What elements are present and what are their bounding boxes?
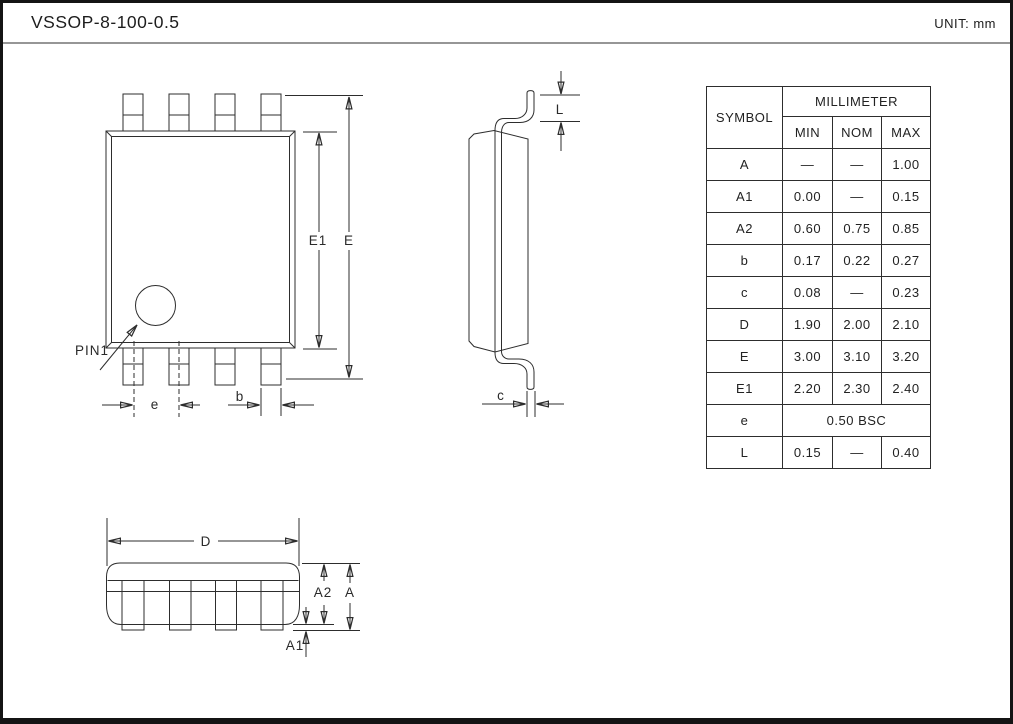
corner-miter bbox=[290, 131, 296, 137]
table-row: L 0.15 — 0.40 bbox=[707, 437, 931, 469]
pin bbox=[261, 94, 281, 131]
top-pins bbox=[123, 94, 281, 131]
lead bbox=[122, 581, 144, 631]
dimension-b: b bbox=[228, 388, 314, 416]
symbol-cell: c bbox=[707, 277, 783, 309]
table-row: A2 0.60 0.75 0.85 bbox=[707, 213, 931, 245]
col-header-nom: NOM bbox=[833, 117, 882, 149]
pin bbox=[215, 94, 235, 131]
lead bbox=[261, 581, 283, 631]
lead bbox=[170, 581, 192, 631]
min-cell: 0.08 bbox=[783, 277, 833, 309]
table-row: E1 2.20 2.30 2.40 bbox=[707, 373, 931, 405]
max-cell: 0.85 bbox=[882, 213, 931, 245]
top-view: PIN1 E1 E e bbox=[75, 94, 363, 417]
max-cell: 0.27 bbox=[882, 245, 931, 277]
pin bbox=[169, 94, 189, 131]
dimension-D: D bbox=[107, 518, 299, 566]
lead-top bbox=[502, 93, 535, 133]
nom-cell: — bbox=[833, 277, 882, 309]
symbol-cell: A bbox=[707, 149, 783, 181]
bottom-pins bbox=[123, 348, 281, 385]
dim-label-E: E bbox=[344, 233, 354, 248]
nom-cell: 2.30 bbox=[833, 373, 882, 405]
nom-cell: — bbox=[833, 149, 882, 181]
min-cell: 2.20 bbox=[783, 373, 833, 405]
lead-bottom bbox=[495, 353, 527, 388]
symbol-cell: E1 bbox=[707, 373, 783, 405]
max-cell: 2.40 bbox=[882, 373, 931, 405]
side-view: L c bbox=[469, 71, 580, 417]
col-header-millimeter: MILLIMETER bbox=[783, 87, 931, 117]
min-cell: 1.90 bbox=[783, 309, 833, 341]
dim-label-E1: E1 bbox=[309, 233, 328, 248]
max-cell: 1.00 bbox=[882, 149, 931, 181]
nom-cell: 0.22 bbox=[833, 245, 882, 277]
span-cell: 0.50 BSC bbox=[783, 405, 931, 437]
min-cell: 0.60 bbox=[783, 213, 833, 245]
table-row: E 3.00 3.10 3.20 bbox=[707, 341, 931, 373]
symbol-cell: A2 bbox=[707, 213, 783, 245]
dim-label-e: e bbox=[151, 397, 160, 412]
dimension-c: c bbox=[482, 388, 564, 417]
min-cell: — bbox=[783, 149, 833, 181]
front-view: D A2 A A1 bbox=[107, 518, 361, 657]
lead-tip-cap bbox=[527, 387, 534, 389]
symbol-cell: e bbox=[707, 405, 783, 437]
dimension-e: e bbox=[102, 341, 200, 417]
dimension-L: L bbox=[540, 71, 580, 151]
nom-cell: 0.75 bbox=[833, 213, 882, 245]
table-row: e 0.50 BSC bbox=[707, 405, 931, 437]
dim-label-D: D bbox=[201, 534, 212, 549]
body-top-surface bbox=[112, 137, 290, 343]
table-row: A1 0.00 — 0.15 bbox=[707, 181, 931, 213]
max-cell: 0.15 bbox=[882, 181, 931, 213]
pin bbox=[215, 348, 235, 385]
body-outline bbox=[107, 563, 300, 625]
col-header-max: MAX bbox=[882, 117, 931, 149]
col-header-min: MIN bbox=[783, 117, 833, 149]
body-outline bbox=[106, 131, 295, 348]
max-cell: 0.40 bbox=[882, 437, 931, 469]
lead-tip-cap bbox=[527, 91, 534, 93]
table-row: D 1.90 2.00 2.10 bbox=[707, 309, 931, 341]
table-row: A — — 1.00 bbox=[707, 149, 931, 181]
pin bbox=[261, 348, 281, 385]
nom-cell: — bbox=[833, 437, 882, 469]
symbol-cell: L bbox=[707, 437, 783, 469]
dimension-A1: A1 bbox=[286, 607, 306, 657]
pin1-label: PIN1 bbox=[75, 343, 109, 358]
table-row: c 0.08 — 0.23 bbox=[707, 277, 931, 309]
table-row: b 0.17 0.22 0.27 bbox=[707, 245, 931, 277]
nom-cell: 2.00 bbox=[833, 309, 882, 341]
lead bbox=[216, 581, 237, 631]
max-cell: 2.10 bbox=[882, 309, 931, 341]
nom-cell: 3.10 bbox=[833, 341, 882, 373]
pin bbox=[123, 94, 143, 131]
symbol-cell: E bbox=[707, 341, 783, 373]
min-cell: 0.17 bbox=[783, 245, 833, 277]
min-cell: 0.00 bbox=[783, 181, 833, 213]
max-cell: 0.23 bbox=[882, 277, 931, 309]
corner-miter bbox=[290, 343, 296, 349]
nom-cell: — bbox=[833, 181, 882, 213]
dimension-table: SYMBOL MILLIMETER MIN NOM MAX A — — 1.00… bbox=[706, 86, 931, 469]
dim-label-c: c bbox=[497, 388, 505, 403]
min-cell: 0.15 bbox=[783, 437, 833, 469]
symbol-cell: A1 bbox=[707, 181, 783, 213]
dim-label-b: b bbox=[236, 389, 245, 404]
lead-top bbox=[495, 93, 527, 131]
min-cell: 3.00 bbox=[783, 341, 833, 373]
col-header-symbol: SYMBOL bbox=[707, 87, 783, 149]
dim-label-L: L bbox=[556, 102, 565, 117]
body-outline bbox=[469, 131, 528, 353]
datasheet-page: VSSOP-8-100-0.5 UNIT: mm bbox=[0, 0, 1013, 724]
dimension-E1: E1 bbox=[303, 132, 337, 349]
dim-label-A: A bbox=[345, 585, 355, 600]
front-leads bbox=[122, 581, 283, 631]
pin1-indicator bbox=[136, 286, 176, 326]
dim-label-A1: A1 bbox=[286, 638, 305, 653]
symbol-cell: D bbox=[707, 309, 783, 341]
max-cell: 3.20 bbox=[882, 341, 931, 373]
symbol-cell: b bbox=[707, 245, 783, 277]
pin bbox=[123, 348, 143, 385]
corner-miter bbox=[106, 131, 112, 137]
lead-bottom bbox=[502, 352, 535, 388]
dim-label-A2: A2 bbox=[314, 585, 333, 600]
